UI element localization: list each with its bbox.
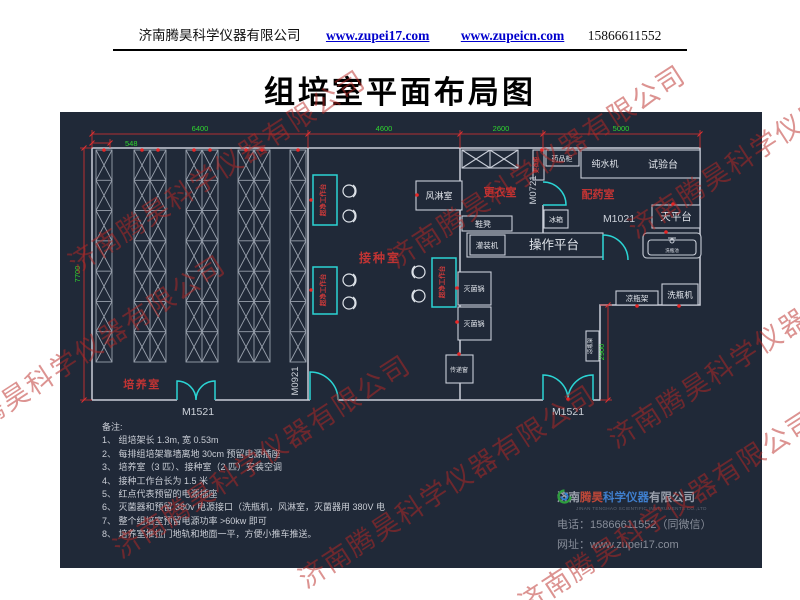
clean-bench-2-label: 超净工作台 — [318, 273, 327, 307]
notes-title: 备注: — [102, 421, 572, 434]
clean-bench-1-label: 超净工作台 — [318, 183, 327, 217]
note-item: 3、 培养室（3 匹）、接种室（2 匹）安装空调 — [102, 461, 572, 474]
brand-cn-2: 腾昊 — [580, 492, 603, 504]
balance-table-label: 天平台 — [660, 210, 692, 223]
note-item: 2、 每排组培架靠墙离地 30cm 预留电源插座 — [102, 448, 572, 461]
brand-cn-4: 有限公司 — [649, 492, 695, 504]
wardrobe-label: 更衣柜 — [532, 156, 540, 173]
sink-label: 洗瓶池 — [665, 247, 679, 254]
equipment-labels: 风淋室 药品柜 纯水机 试验台 鞋凳 冰箱 天平台 操作平台 灌装机 洗瓶池 灭… — [425, 154, 693, 374]
phone-label: 电话： — [557, 519, 590, 531]
cooling-rack-v-label: 凉瓶架 — [586, 337, 594, 354]
dim-7700: 7700 — [73, 266, 82, 283]
air-shower-label: 风淋室 — [425, 190, 452, 201]
culture-racks — [96, 150, 306, 362]
sterilizer-2-label: 灭菌锅 — [464, 319, 485, 328]
medicine-cabinet-label: 药品柜 — [552, 154, 573, 163]
dim-5000: 5000 — [613, 124, 630, 133]
brand-company-en: JINAN TENGHAO SCIENTIFIC INSTRUMENTS CO.… — [576, 506, 767, 511]
dim-2600: 2600 — [493, 124, 510, 133]
door-label-m0921: M0921 — [290, 366, 301, 395]
note-item: 5、 红点代表预留的电源插座 — [102, 488, 572, 501]
room-labels: 培养室 接种室 更衣室 配药室 — [123, 185, 614, 391]
changing-room-locker — [462, 150, 518, 168]
sterilizer-1-label: 灭菌锅 — [464, 284, 485, 293]
shoe-bench-label: 鞋凳 — [475, 219, 491, 229]
note-item: 4、 接种工作台长为 1.5 米 — [102, 475, 572, 488]
clean-bench-3-label: 超净工作台 — [437, 265, 446, 299]
page: 济南腾昊科学仪器有限公司 www.zupei17.com www.zupeicn… — [0, 0, 800, 600]
door-label-m1521-left: M1521 — [182, 406, 214, 418]
bottle-washer-label: 洗瓶机 — [667, 290, 693, 300]
door-m0721 — [543, 182, 566, 205]
brand-block: 济南腾昊科学仪器有限公司 JINAN TENGHAO SCIENTIFIC IN… — [557, 489, 767, 552]
web-label: 网址： — [557, 539, 590, 551]
door-m1521-right — [543, 375, 593, 400]
cooling-rack-h-label: 凉瓶架 — [626, 293, 649, 303]
room-label-culture: 培养室 — [123, 377, 161, 391]
header-divider — [113, 49, 687, 51]
cad-panel: 6400 4600 2600 5000 548 7700 2900 — [60, 112, 762, 568]
header: 济南腾昊科学仪器有限公司 www.zupei17.com www.zupeicn… — [0, 0, 800, 44]
dim-548: 548 — [125, 139, 138, 148]
header-phone: 15866611552 — [588, 28, 662, 43]
door-m1021 — [603, 235, 628, 260]
door-label-m1521-right: M1521 — [552, 406, 584, 418]
page-title: 组培室平面布局图 — [0, 67, 800, 112]
brand-company-name: 济南腾昊科学仪器有限公司 — [557, 489, 695, 505]
web-value[interactable]: www.zupei17.com — [590, 539, 679, 551]
phone-value: 15866611552（同微信） — [590, 519, 711, 531]
header-link-zupeicn[interactable]: www.zupeicn.com — [461, 28, 565, 43]
equipment — [416, 150, 701, 383]
note-item: 7、 整个组培室预留电源功率 >60kw 即可 — [102, 515, 572, 528]
dim-6400: 6400 — [192, 124, 209, 133]
brand-cn-3: 科学仪器 — [603, 492, 649, 504]
red-vertical-labels: 超净工作台 超净工作台 超净工作台 更衣柜 — [318, 156, 540, 307]
fridge-label: 冰箱 — [549, 215, 563, 224]
brand-web-line: 网址：www.zupei17.com — [557, 536, 767, 552]
header-link-zupei17[interactable]: www.zupei17.com — [326, 28, 430, 43]
operation-platform-label: 操作平台 — [529, 237, 579, 252]
brand-phone-line: 电话：15866611552（同微信） — [557, 516, 767, 532]
header-company: 济南腾昊科学仪器有限公司 — [139, 28, 301, 43]
room-label-dispensing: 配药室 — [582, 187, 615, 201]
note-item: 1、 组培架长 1.3m, 宽 0.53m — [102, 434, 572, 447]
door-label-m1021: M1021 — [603, 213, 635, 225]
test-bench-label: 试验台 — [648, 158, 678, 171]
water-purifier-label: 纯水机 — [591, 158, 618, 169]
filling-machine-label: 灌装机 — [476, 240, 499, 250]
walls — [92, 148, 700, 400]
dim-4600: 4600 — [376, 124, 393, 133]
company-logo-icon — [557, 489, 572, 504]
door-m1521-left — [177, 381, 215, 400]
note-item: 8、 培养室推拉门地轨和地面一平，方便小推车推送。 — [102, 528, 572, 541]
stools — [343, 185, 425, 309]
door-m0921 — [310, 372, 338, 400]
note-item: 6、 灭菌器和预留 380v 电源接口（洗瓶机，风淋室，灭菌器用 380V 电 — [102, 501, 572, 514]
room-label-changing: 更衣室 — [484, 185, 517, 199]
door-label-m0721: M0721 — [528, 175, 539, 204]
notes-block: 备注: 1、 组培架长 1.3m, 宽 0.53m 2、 每排组培架靠墙离地 3… — [102, 421, 572, 542]
pass-window-label: 传递窗 — [450, 366, 468, 374]
room-label-inoculation: 接种室 — [359, 250, 401, 265]
